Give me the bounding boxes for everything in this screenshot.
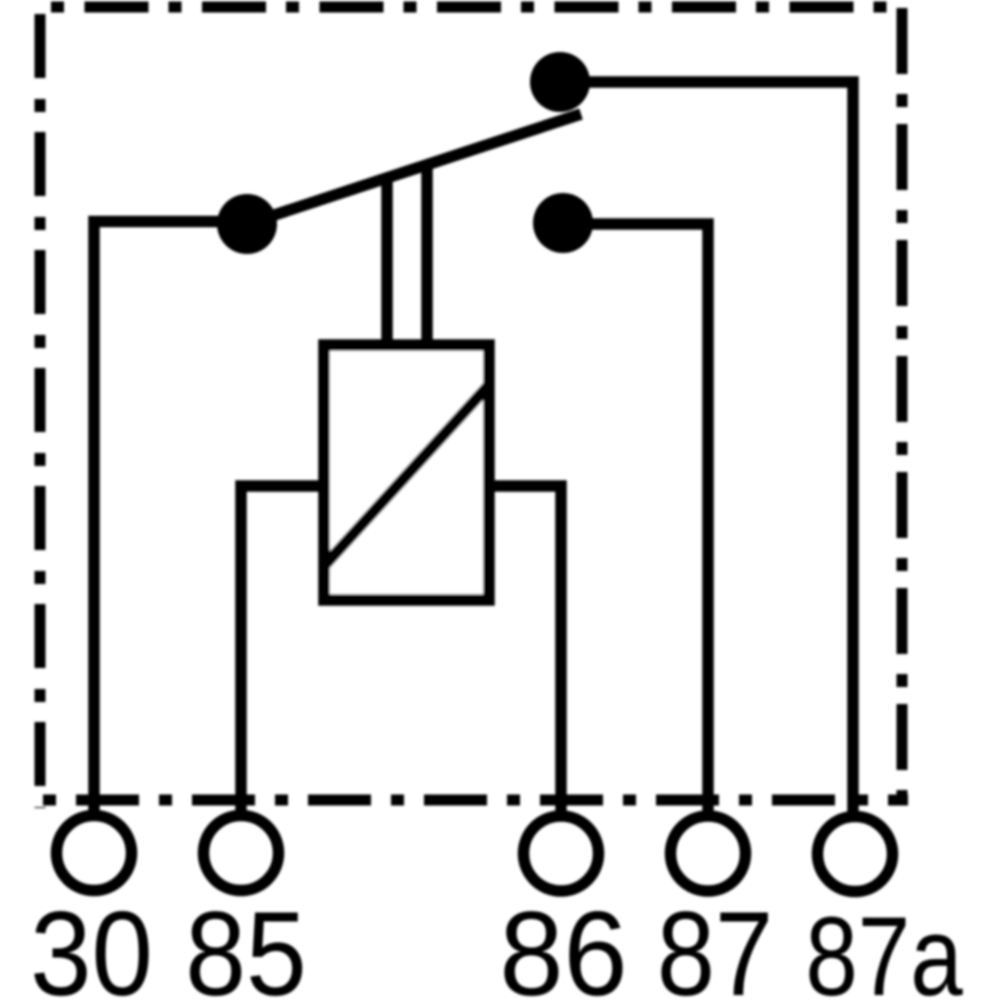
svg-text:85: 85: [185, 887, 306, 1000]
svg-text:30: 30: [30, 888, 153, 1000]
svg-text:86: 86: [499, 887, 627, 1000]
svg-text:87: 87: [657, 886, 773, 1000]
svg-text:87a: 87a: [805, 893, 963, 1000]
